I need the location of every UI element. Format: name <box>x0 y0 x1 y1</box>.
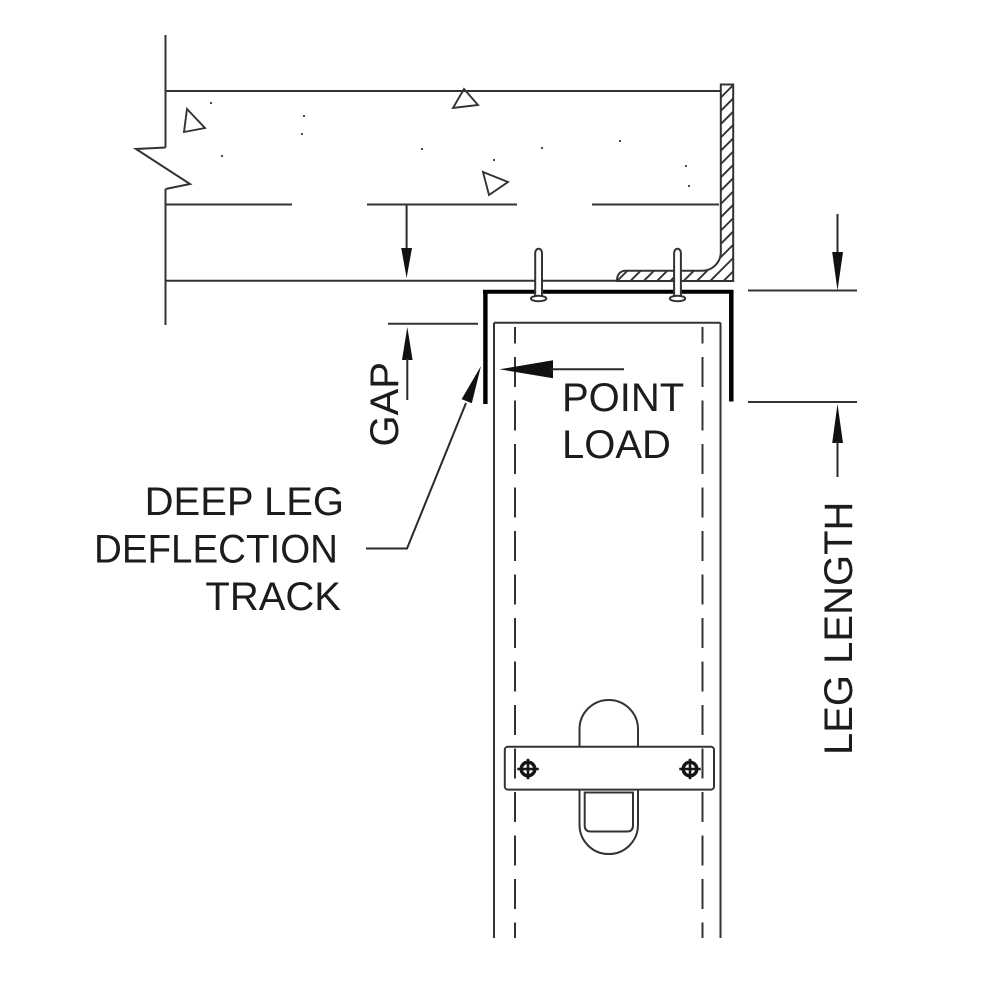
svg-text:TRACK: TRACK <box>205 575 341 619</box>
svg-text:LEG LENGTH: LEG LENGTH <box>817 502 861 755</box>
svg-text:GAP: GAP <box>363 362 407 446</box>
svg-text:DEFLECTION: DEFLECTION <box>94 528 338 572</box>
svg-text:POINT: POINT <box>562 376 684 420</box>
svg-text:DEEP LEG: DEEP LEG <box>145 480 344 524</box>
svg-text:LOAD: LOAD <box>562 423 671 467</box>
